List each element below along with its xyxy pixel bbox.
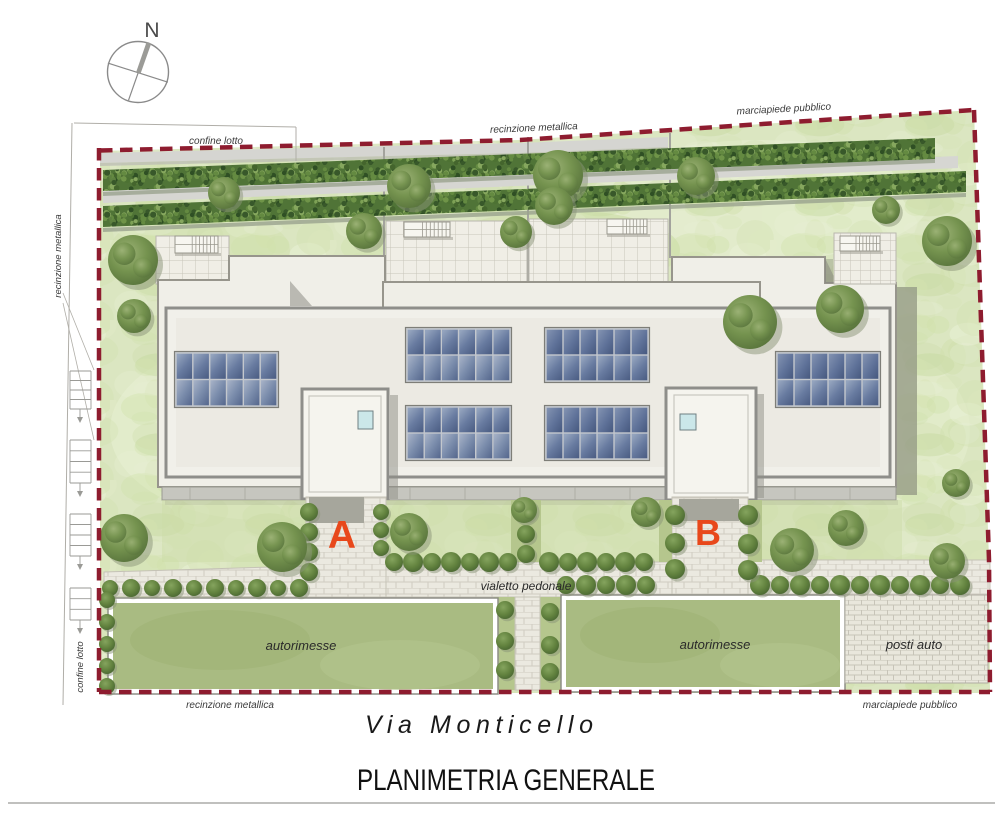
svg-text:marciapiede pubblico: marciapiede pubblico — [863, 700, 958, 711]
svg-text:posti auto: posti auto — [885, 637, 942, 652]
svg-text:Via Monticello: Via Monticello — [365, 711, 593, 739]
svg-text:recinzione metallica: recinzione metallica — [53, 214, 64, 297]
svg-text:A: A — [328, 514, 356, 557]
svg-text:B: B — [695, 512, 721, 553]
svg-text:PLANIMETRIA GENERALE: PLANIMETRIA GENERALE — [357, 764, 655, 797]
svg-text:autorimesse: autorimesse — [680, 637, 751, 652]
svg-text:recinzione metallica: recinzione metallica — [490, 121, 579, 136]
svg-text:N: N — [144, 19, 159, 42]
svg-text:confine lotto: confine lotto — [189, 136, 243, 147]
svg-text:vialetto pedonale: vialetto pedonale — [481, 579, 572, 593]
svg-text:confine lotto: confine lotto — [75, 641, 86, 692]
svg-text:autorimesse: autorimesse — [266, 638, 337, 653]
svg-text:recinzione metallica: recinzione metallica — [186, 700, 274, 711]
svg-text:marciapiede pubblico: marciapiede pubblico — [736, 102, 831, 118]
